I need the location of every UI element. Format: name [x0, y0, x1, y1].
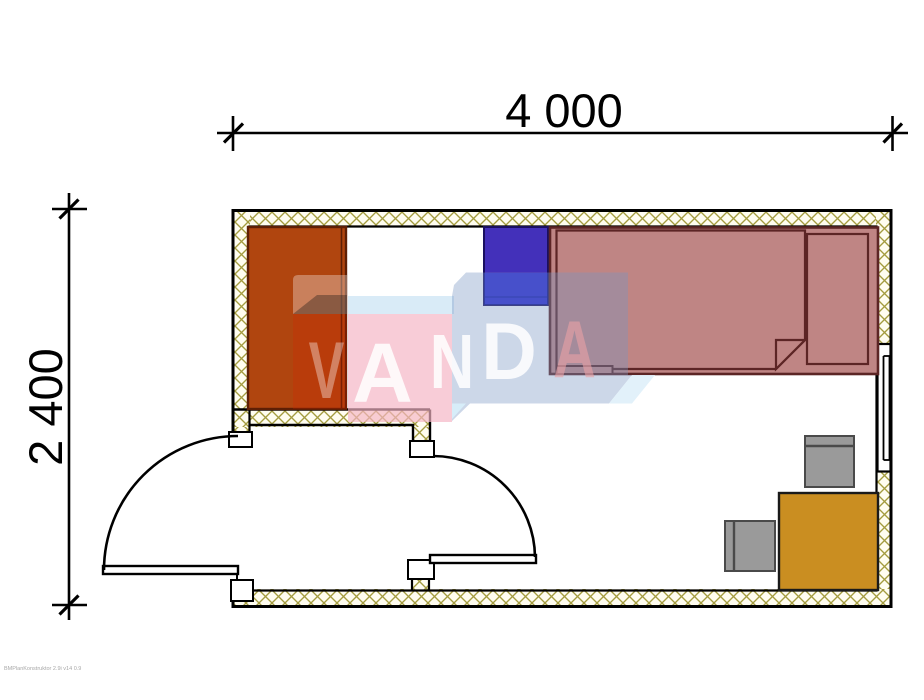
svg-text:V: V [309, 325, 345, 416]
svg-text:D: D [481, 305, 537, 396]
svg-text:BMPlanKonstruktor 2.9i v14 0.9: BMPlanKonstruktor 2.9i v14 0.9 [4, 666, 81, 672]
svg-text:A: A [553, 305, 596, 395]
svg-text:4 000: 4 000 [505, 84, 623, 137]
svg-text:2 400: 2 400 [19, 348, 72, 466]
svg-text:A: A [352, 326, 413, 420]
svg-text:N: N [430, 318, 474, 404]
